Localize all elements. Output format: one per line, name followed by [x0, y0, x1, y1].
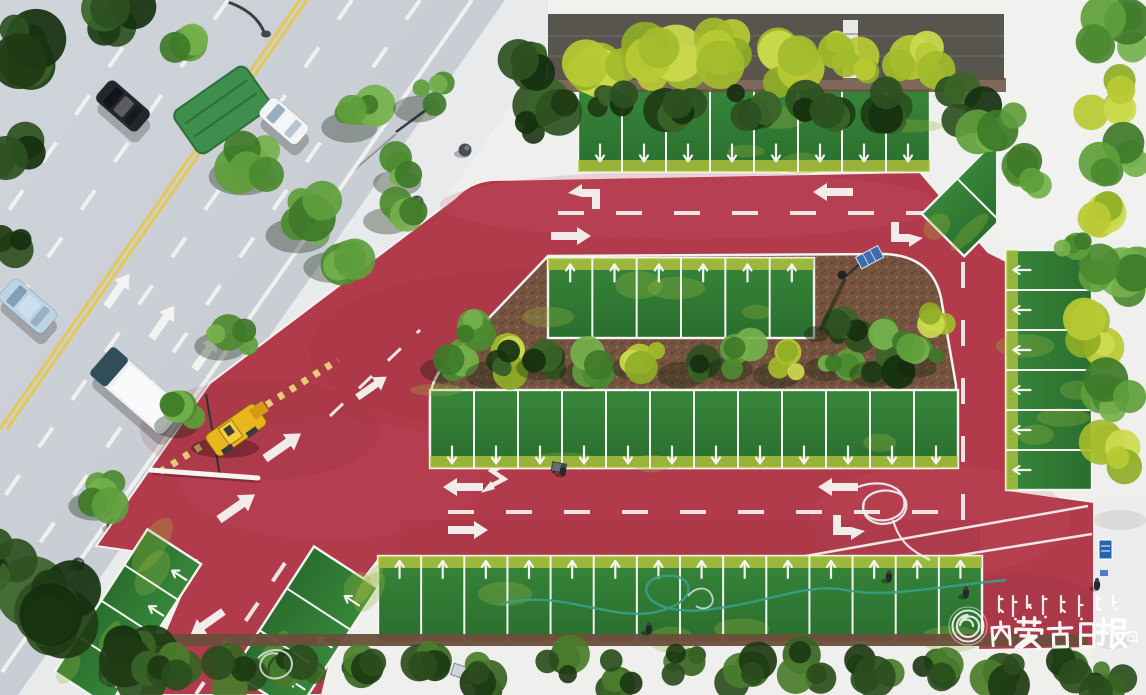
pavement-shade [400, 520, 980, 556]
blue-sign [1099, 540, 1112, 559]
tree [1076, 0, 1146, 64]
light-shadow [804, 326, 830, 342]
grass-patch [410, 384, 462, 397]
grass-patch [648, 277, 706, 300]
grass-patch [996, 334, 1055, 357]
street-lamp-head [261, 31, 271, 38]
pavement-highlight [440, 171, 940, 239]
grass-patch [632, 455, 671, 472]
lamp-head [838, 271, 847, 280]
grass-patch [522, 307, 574, 327]
parking-row [410, 384, 958, 473]
parking-row [522, 258, 814, 338]
grass-patch [742, 305, 771, 320]
aerial-photo [0, 0, 1146, 695]
walkway-shadow [1094, 510, 1146, 530]
sign-base [1100, 570, 1108, 576]
parking-row [996, 250, 1096, 490]
grass-patch [1018, 424, 1054, 444]
grass-patch [728, 145, 765, 157]
dirt-strip [140, 634, 1088, 646]
aerial-photo-stage: 内蒙古日报 [0, 0, 1146, 695]
